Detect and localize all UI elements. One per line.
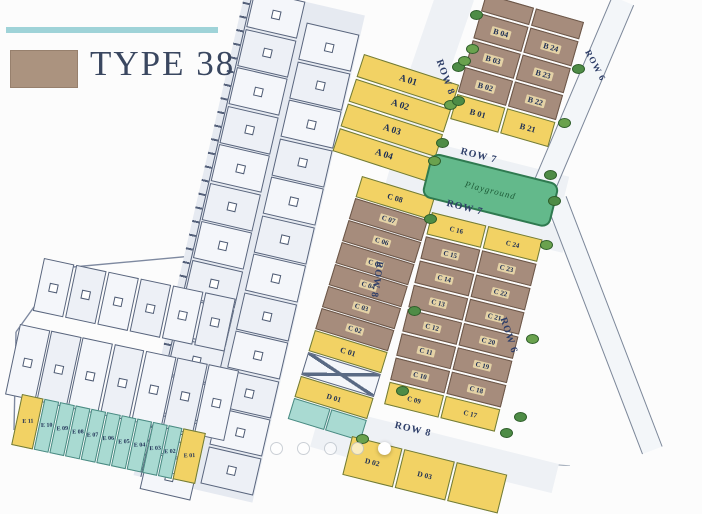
bush-icon xyxy=(514,412,527,422)
bush-icon xyxy=(452,96,465,106)
park-label: Playground xyxy=(464,179,517,201)
bush-icon xyxy=(428,156,441,166)
carousel-dot[interactable] xyxy=(351,442,364,455)
legend-color-swatch xyxy=(10,50,78,88)
bush-icon xyxy=(466,44,479,54)
carousel-dot[interactable] xyxy=(270,442,283,455)
legend-type-label: TYPE 38 xyxy=(90,44,235,84)
bush-icon xyxy=(408,306,421,316)
bush-icon xyxy=(526,334,539,344)
carousel-dots xyxy=(270,440,405,456)
bush-icon xyxy=(540,240,553,250)
legend-accent-line xyxy=(6,27,218,33)
bush-icon xyxy=(436,138,449,148)
bush-icon xyxy=(548,196,561,206)
bush-icon xyxy=(544,170,557,180)
bush-icon xyxy=(500,428,513,438)
bush-icon xyxy=(558,118,571,128)
bush-icon xyxy=(470,10,483,20)
carousel-dot[interactable] xyxy=(378,442,391,455)
carousel-dot[interactable] xyxy=(324,442,337,455)
bush-icon xyxy=(572,64,585,74)
carousel-dot[interactable] xyxy=(297,442,310,455)
bush-icon xyxy=(458,56,471,66)
bush-icon xyxy=(396,386,409,396)
bush-icon xyxy=(424,214,437,224)
